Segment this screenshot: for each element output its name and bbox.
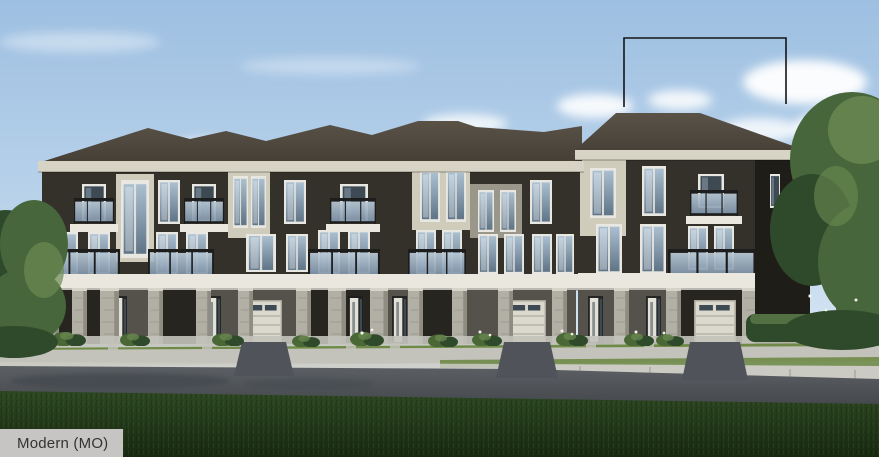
window: [284, 180, 306, 224]
window: [246, 234, 276, 272]
window: [642, 166, 666, 216]
window: [532, 234, 552, 274]
window: [590, 168, 616, 218]
window: [420, 170, 440, 222]
window: [640, 224, 666, 274]
rendering-viewport: Modern (MO): [0, 0, 879, 457]
streetscape: [0, 336, 879, 457]
garage-door: [508, 300, 546, 342]
window: [446, 170, 466, 222]
deck-band: [578, 273, 758, 290]
window: [286, 234, 308, 272]
balcony-railing: [690, 190, 738, 216]
balcony-railing: [330, 198, 376, 224]
window: [478, 234, 498, 274]
window: [596, 224, 622, 274]
deck-band: [40, 274, 584, 290]
driveway: [496, 342, 558, 378]
window: [500, 190, 516, 232]
garage-door: [694, 300, 736, 342]
wet-patch: [10, 373, 230, 389]
driveway: [682, 342, 748, 380]
entry-door: [392, 296, 407, 342]
balcony-railing: [408, 249, 466, 277]
window: [530, 180, 552, 224]
balcony-railing: [308, 249, 380, 277]
scene-rendering: [0, 0, 879, 457]
balcony-railing: [184, 198, 224, 224]
window: [556, 234, 574, 274]
balcony-railing: [74, 198, 114, 224]
townhome-building: [38, 113, 812, 344]
window: [251, 176, 266, 228]
window: [504, 234, 524, 274]
entry-door: [588, 296, 603, 342]
ground-floor: [42, 288, 760, 344]
balcony-railing: [148, 249, 214, 277]
style-caption-label: Modern (MO): [17, 435, 108, 452]
balcony-railing: [668, 249, 756, 277]
entry-door: [646, 296, 661, 342]
window: [158, 180, 180, 224]
driveway: [234, 342, 294, 376]
window: [121, 180, 149, 258]
window: [478, 190, 494, 232]
style-caption: Modern (MO): [0, 429, 123, 457]
window: [233, 176, 248, 228]
